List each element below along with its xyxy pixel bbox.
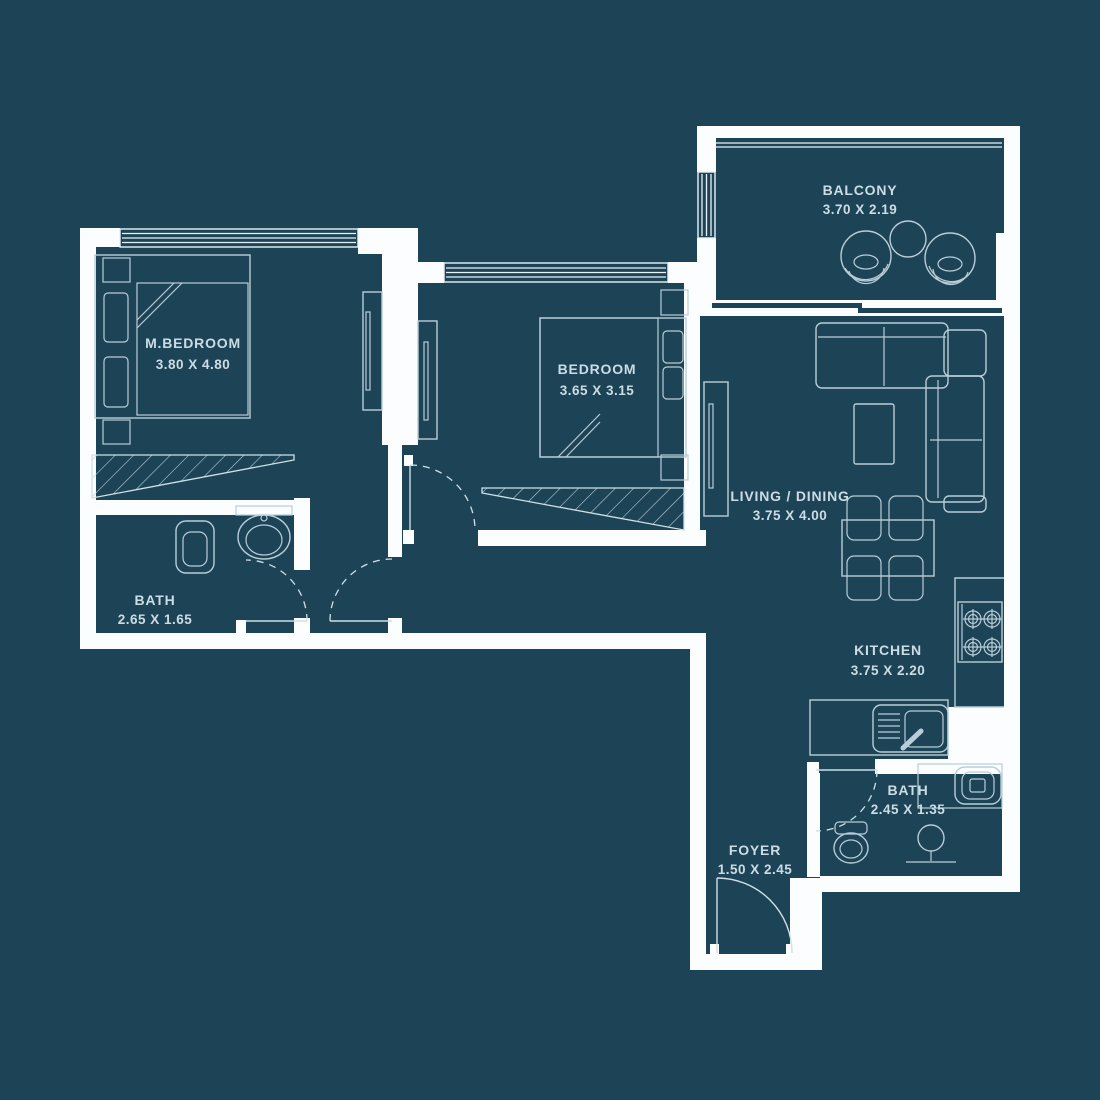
- room-dims-kitchen: 3.75 X 2.20: [851, 663, 926, 678]
- room-dims-bedroom: 3.65 X 3.15: [560, 383, 635, 398]
- wall-central-lower: [388, 445, 402, 557]
- wall-bath1-top: [80, 500, 310, 515]
- wall-balcony-left-upper: [697, 126, 716, 172]
- floor-plan: M.BEDROOM 3.80 X 4.80 BEDROOM 3.65 X 3.1…: [0, 0, 1100, 1100]
- wall-bath2-right: [1002, 753, 1020, 892]
- room-dims-bath-guest: 2.45 X 1.35: [871, 802, 946, 817]
- wall-bath2-left: [807, 773, 820, 877]
- background: [0, 0, 1100, 1100]
- room-dims-master-bedroom: 3.80 X 4.80: [156, 357, 231, 372]
- wall-hall-door-stub: [388, 618, 402, 633]
- wall-balcony-top: [706, 126, 1020, 138]
- wall-entry-stub-right: [786, 944, 795, 954]
- wall-mbed-top-left-block: [80, 228, 120, 247]
- room-label-master-bedroom: M.BEDROOM: [145, 335, 241, 351]
- wall-bath2-bottom: [820, 876, 1020, 892]
- room-label-living-dining: LIVING / DINING: [730, 488, 849, 504]
- wall-balcony-jog: [996, 233, 1004, 305]
- room-dims-bath-master: 2.65 X 1.65: [118, 612, 193, 627]
- wall-bed2-door-stub-bottom: [403, 530, 414, 544]
- bedroom-window: [444, 263, 668, 282]
- wall-bed2-window-left-block: [414, 262, 444, 283]
- room-label-kitchen: KITCHEN: [854, 642, 922, 658]
- wall-foyer-left: [690, 633, 706, 970]
- room-label-foyer: FOYER: [729, 842, 781, 858]
- wall-central-upper: [382, 247, 418, 445]
- room-label-bath-master: BATH: [134, 592, 175, 608]
- room-label-balcony: BALCONY: [823, 182, 898, 198]
- room-dims-living-dining: 3.75 X 4.00: [753, 508, 828, 523]
- wall-balcony-left-lower: [697, 238, 716, 304]
- wall-exterior-left: [80, 228, 96, 649]
- wall-bath1-right: [294, 498, 310, 570]
- room-dims-foyer: 1.50 X 2.45: [718, 862, 793, 877]
- wall-bed2-door-stub-top: [404, 455, 413, 466]
- wall-main-bottom: [80, 633, 706, 649]
- mbedroom-window: [120, 229, 358, 247]
- room-label-bath-guest: BATH: [887, 782, 928, 798]
- balcony-side-window: [698, 172, 715, 238]
- wall-bath1-door-stub-left: [236, 620, 246, 633]
- wall-exterior-right: [1004, 126, 1020, 707]
- room-dims-balcony: 3.70 X 2.19: [823, 202, 898, 217]
- wall-kitchen-bath-block: [948, 707, 1020, 760]
- wall-bath2-door-stub: [807, 762, 819, 773]
- wall-foyer-right-block: [790, 878, 822, 970]
- floor-plan-page: M.BEDROOM 3.80 X 4.80 BEDROOM 3.65 X 3.1…: [0, 0, 1100, 1100]
- room-label-bedroom: BEDROOM: [558, 361, 637, 377]
- wall-bed2-bottom: [478, 530, 706, 546]
